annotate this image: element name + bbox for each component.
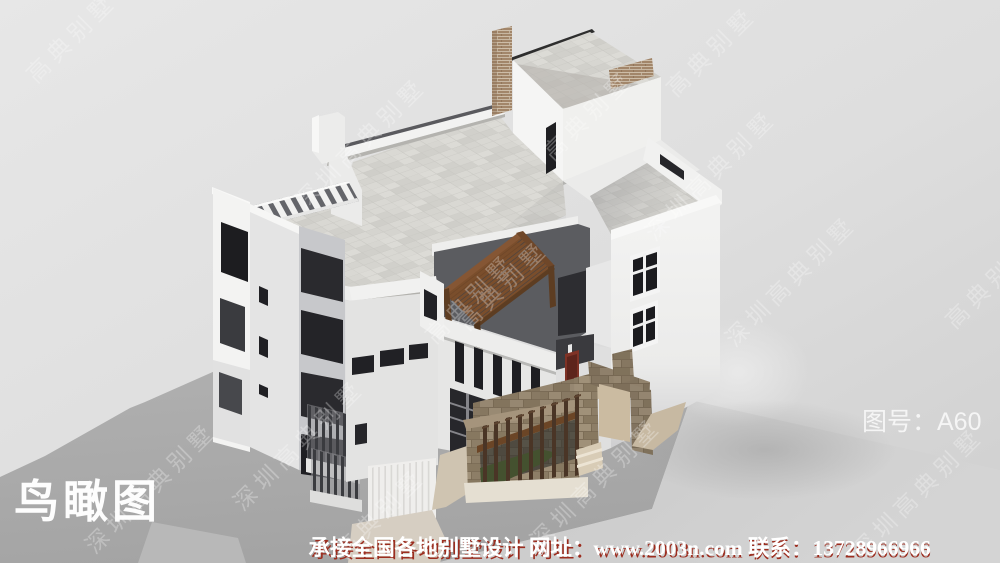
svg-text:鸟瞰图: 鸟瞰图 <box>14 476 161 527</box>
svg-text:承接全国各地别墅设计 网址：www.2003n.com 联系: 承接全国各地别墅设计 网址：www.2003n.com 联系：137289669… <box>309 535 932 560</box>
svg-text:图号：A60: 图号：A60 <box>862 408 981 436</box>
